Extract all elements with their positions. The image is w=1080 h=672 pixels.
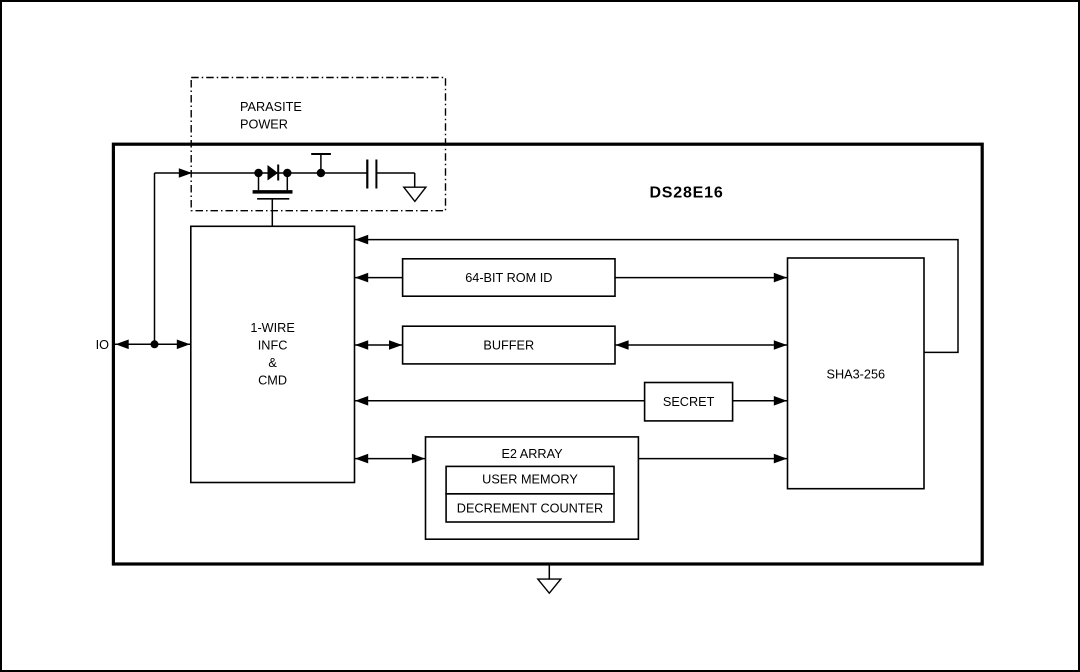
svg-text:PARASITE: PARASITE: [240, 100, 302, 114]
svg-text:DS28E16: DS28E16: [649, 185, 723, 202]
svg-text:BUFFER: BUFFER: [483, 339, 534, 353]
svg-text:64-BIT ROM ID: 64-BIT ROM ID: [465, 271, 552, 285]
svg-text:&: &: [268, 356, 277, 370]
svg-text:USER MEMORY: USER MEMORY: [482, 473, 578, 487]
svg-text:DECREMENT COUNTER: DECREMENT COUNTER: [457, 502, 603, 516]
svg-text:1-WIRE: 1-WIRE: [250, 321, 294, 335]
svg-text:IO: IO: [96, 338, 110, 352]
svg-text:SHA3-256: SHA3-256: [827, 368, 886, 382]
svg-text:CMD: CMD: [258, 374, 287, 388]
svg-text:POWER: POWER: [240, 118, 288, 132]
svg-text:E2 ARRAY: E2 ARRAY: [501, 447, 563, 461]
svg-text:INFC: INFC: [258, 339, 288, 353]
svg-text:SECRET: SECRET: [663, 395, 715, 409]
